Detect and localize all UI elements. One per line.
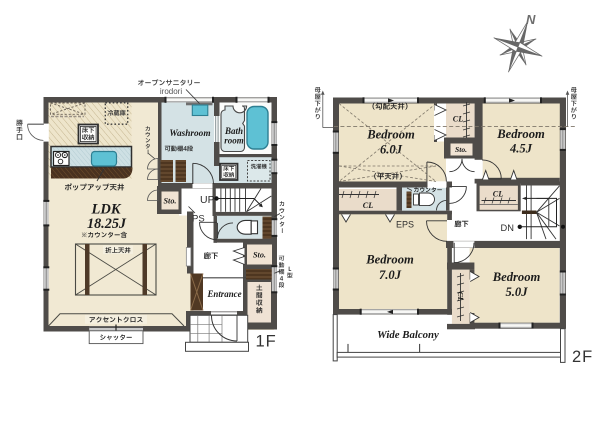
svg-text:4.5J: 4.5J bbox=[509, 141, 533, 155]
svg-text:1F: 1F bbox=[256, 333, 277, 351]
svg-text:CL: CL bbox=[456, 292, 465, 302]
svg-text:Bedroom: Bedroom bbox=[365, 253, 414, 267]
svg-text:Wide Balcony: Wide Balcony bbox=[377, 329, 439, 341]
svg-text:Sto.: Sto. bbox=[253, 251, 266, 260]
svg-text:CL: CL bbox=[363, 201, 373, 210]
svg-text:N: N bbox=[526, 12, 536, 27]
svg-text:irodori: irodori bbox=[160, 87, 182, 96]
svg-text:Washroom: Washroom bbox=[169, 129, 210, 139]
svg-text:Bedroom: Bedroom bbox=[496, 127, 545, 141]
svg-text:6.0J: 6.0J bbox=[380, 143, 403, 157]
svg-text:Bedroom: Bedroom bbox=[366, 128, 415, 142]
svg-text:2F: 2F bbox=[572, 348, 593, 366]
svg-text:Bath: Bath bbox=[224, 126, 243, 136]
svg-text:7.0J: 7.0J bbox=[379, 268, 402, 282]
svg-text:18.25J: 18.25J bbox=[87, 216, 127, 232]
svg-text:Entrance: Entrance bbox=[206, 289, 241, 299]
svg-text:PS: PS bbox=[192, 214, 205, 225]
svg-text:Sto.: Sto. bbox=[455, 145, 467, 154]
svg-text:DN: DN bbox=[501, 223, 514, 233]
svg-text:Sto.: Sto. bbox=[164, 197, 177, 206]
svg-text:UP: UP bbox=[200, 194, 215, 206]
svg-text:CL: CL bbox=[493, 190, 503, 199]
svg-text:5.0J: 5.0J bbox=[505, 285, 528, 299]
svg-text:room: room bbox=[224, 136, 244, 146]
svg-text:Bedroom: Bedroom bbox=[492, 270, 541, 284]
svg-text:CL: CL bbox=[453, 115, 463, 124]
svg-text:EPS: EPS bbox=[396, 220, 414, 230]
